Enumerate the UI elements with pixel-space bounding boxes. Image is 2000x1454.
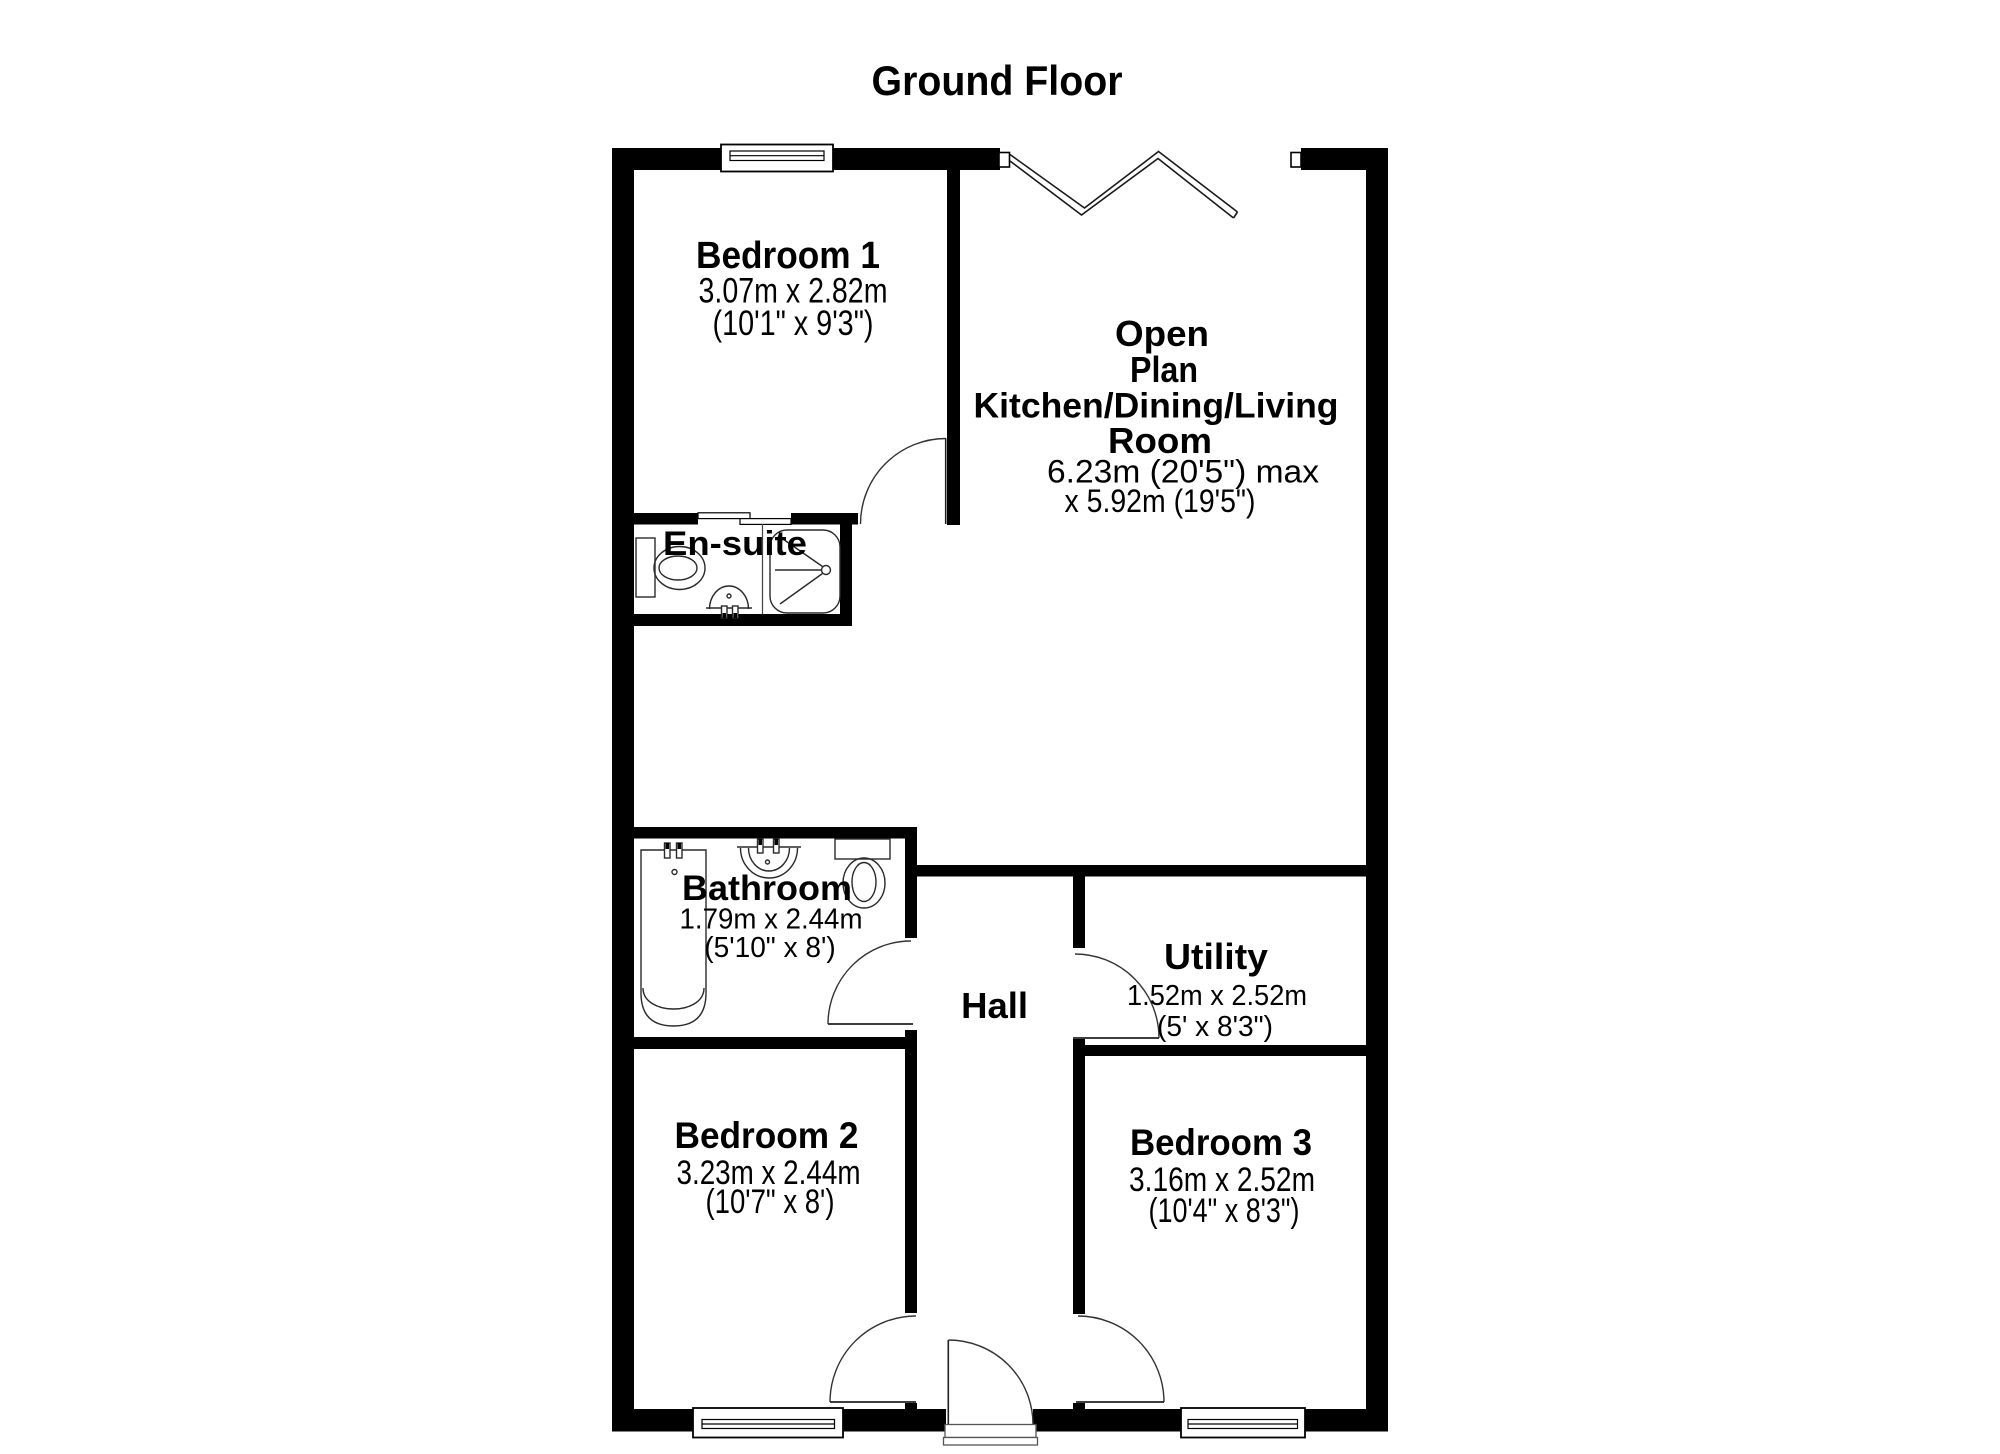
svg-text:(10'4" x 8'3"): (10'4" x 8'3") [1149, 1192, 1300, 1230]
svg-text:(5' x 8'3"): (5' x 8'3") [1157, 1011, 1273, 1043]
svg-text:(5'10" x 8'): (5'10" x 8') [704, 932, 836, 964]
svg-text:(10'7" x 8'): (10'7" x 8') [706, 1183, 835, 1221]
svg-text:Open: Open [1115, 313, 1209, 354]
svg-text:Bedroom 2: Bedroom 2 [675, 1115, 859, 1156]
svg-text:1.79m x 2.44m: 1.79m x 2.44m [680, 904, 863, 936]
svg-text:Bathroom: Bathroom [682, 869, 852, 908]
svg-text:x 5.92m (19'5"): x 5.92m (19'5") [1065, 483, 1256, 519]
svg-text:Ground Floor: Ground Floor [872, 57, 1123, 104]
svg-text:(10'1" x 9'3"): (10'1" x 9'3") [713, 304, 874, 343]
svg-text:Bedroom 3: Bedroom 3 [1130, 1122, 1312, 1163]
svg-text:1.52m x 2.52m: 1.52m x 2.52m [1127, 980, 1307, 1012]
svg-text:Utility: Utility [1164, 936, 1268, 977]
svg-text:Plan: Plan [1130, 349, 1198, 390]
svg-text:En-suite: En-suite [663, 525, 807, 563]
svg-text:Hall: Hall [961, 985, 1028, 1026]
